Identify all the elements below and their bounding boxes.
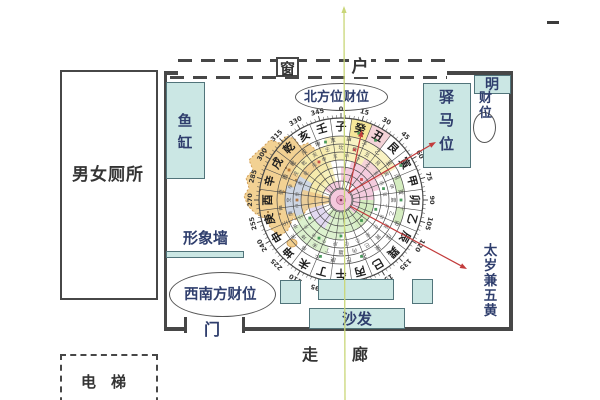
svg-text:卯: 卯 xyxy=(408,195,422,206)
window-dashed-line-outer xyxy=(178,59,452,62)
svg-text:震: 震 xyxy=(390,197,396,202)
table-wide xyxy=(318,279,394,300)
svg-text:240: 240 xyxy=(255,237,269,253)
svg-text:30: 30 xyxy=(381,115,393,127)
room-wall-right xyxy=(509,71,513,331)
svg-text:75: 75 xyxy=(424,171,434,182)
svg-text:0: 0 xyxy=(339,105,344,113)
svg-text:90: 90 xyxy=(428,195,436,205)
window-char-box: 窗 xyxy=(276,57,299,77)
svg-text:255: 255 xyxy=(247,216,258,232)
svg-text:子: 子 xyxy=(336,120,347,133)
svg-text:酉: 酉 xyxy=(261,195,274,206)
window-door-char: 户 xyxy=(349,57,371,77)
svg-text:坎: 坎 xyxy=(338,145,343,152)
top-right-dash xyxy=(547,21,559,24)
image-wall-label: 形象墙 xyxy=(183,229,228,247)
door-jamb-left xyxy=(184,317,187,333)
side-table-left xyxy=(280,280,301,304)
door-label: 门 xyxy=(204,320,220,339)
svg-text:330: 330 xyxy=(288,114,304,128)
svg-text:270: 270 xyxy=(246,193,254,207)
image-wall-bar xyxy=(166,251,244,258)
svg-text:甲: 甲 xyxy=(346,137,352,145)
svg-text:120: 120 xyxy=(413,238,427,254)
svg-text:105: 105 xyxy=(423,216,434,232)
corridor-label: 走廊 xyxy=(302,341,402,365)
svg-text:甲: 甲 xyxy=(344,154,349,161)
bright-wealth-rest-label: 财位 xyxy=(478,92,493,122)
window-char1: 窗 xyxy=(280,60,295,78)
svg-text:兌: 兌 xyxy=(286,197,293,202)
southwest-wealth-label: 西南方财位 xyxy=(184,287,257,304)
window-char2: 户 xyxy=(352,57,369,77)
taisui-label: 太岁兼五黄 xyxy=(482,244,499,320)
room-wall-bottom-left xyxy=(164,327,186,331)
fengshui-floorplan: 男女厕所 窗 户 北方位财位 子癸丑艮寅甲卯乙辰巽巳丙午丁未坤申庚酉辛戌乾亥壬0… xyxy=(0,0,600,400)
window-dashed-line-inner xyxy=(170,76,447,79)
elevator-label: 电梯 xyxy=(81,371,141,392)
post-horse-label: 驿马位 xyxy=(438,86,455,156)
toilet-room xyxy=(60,70,158,300)
side-table-right xyxy=(412,279,433,304)
door-jamb-right xyxy=(242,317,245,333)
toilet-label: 男女厕所 xyxy=(72,160,144,185)
fish-tank-label: 鱼缸 xyxy=(177,111,193,156)
svg-text:離: 離 xyxy=(338,249,343,256)
north-wealth-label: 北方位财位 xyxy=(304,90,369,106)
room-wall-top-left-stub xyxy=(164,71,178,75)
svg-text:15: 15 xyxy=(359,107,370,117)
svg-text:345: 345 xyxy=(310,106,326,117)
sofa-label: 沙发 xyxy=(342,310,372,328)
room-wall-top-right-stub xyxy=(447,71,512,75)
